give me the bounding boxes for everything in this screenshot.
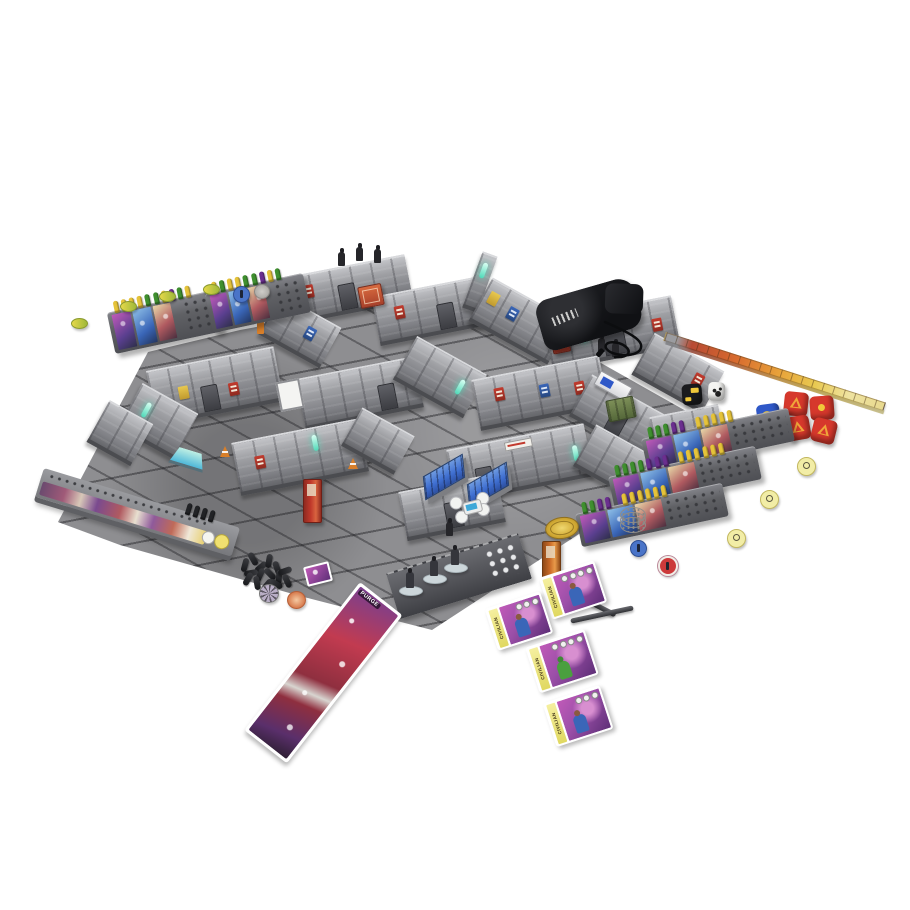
wall-door: [200, 384, 222, 413]
yellow-round-token: [760, 490, 779, 509]
peg: [258, 271, 265, 284]
wall-door: [377, 382, 399, 411]
peg: [727, 410, 734, 423]
peg: [176, 287, 183, 300]
peg: [646, 427, 653, 440]
peg: [718, 442, 725, 455]
peg: [192, 505, 200, 518]
peg: [112, 300, 119, 313]
peg: [274, 268, 281, 281]
crew-miniature: [406, 572, 414, 588]
wall-glow-light: [140, 402, 152, 418]
peg: [226, 278, 233, 291]
peg: [678, 451, 685, 464]
peg: [719, 411, 726, 424]
civilian-card-icons: [550, 634, 583, 651]
peg: [266, 270, 273, 283]
peg: [678, 420, 685, 433]
orange-disc-token: [287, 591, 306, 609]
yellow-round-token: [797, 457, 816, 476]
civilian-figure: [567, 585, 585, 606]
wall-glow-light: [454, 379, 466, 395]
peg: [588, 500, 595, 513]
wall-door: [337, 282, 359, 311]
black-peg: [247, 551, 259, 566]
peg: [645, 488, 652, 501]
peg: [662, 454, 669, 467]
blue-token: [233, 286, 250, 303]
civilian-card-icons: [574, 691, 599, 705]
blue-token: [630, 540, 647, 557]
traffic-cone-prop: [348, 458, 358, 469]
wall-door: [436, 302, 458, 331]
wall-poster-yellow: [178, 385, 190, 400]
peg: [702, 446, 709, 459]
yellow-round-token: [727, 529, 746, 548]
peg: [670, 453, 677, 466]
peg: [694, 448, 701, 461]
peg: [637, 459, 644, 472]
oval-token: [203, 284, 220, 295]
wall-checkpoint-sign: [504, 437, 533, 451]
crew-miniature: [430, 560, 438, 576]
white-die: [708, 382, 726, 402]
peg: [703, 415, 710, 428]
red-container-prop: [357, 283, 385, 309]
peg: [620, 493, 627, 506]
black-die: [681, 383, 702, 405]
oval-token: [120, 301, 137, 312]
peg: [645, 458, 652, 471]
civilian-figure: [513, 616, 531, 637]
peg: [686, 418, 693, 431]
peg: [144, 294, 151, 307]
peg: [661, 485, 668, 498]
bag-drawstring: [560, 300, 680, 370]
wall-poster-red: [493, 387, 505, 402]
red-die: [809, 395, 835, 421]
miniature-figure: [446, 522, 453, 536]
civilian-card-icons: [514, 597, 539, 611]
miniature-figure: [338, 252, 345, 266]
miniature-figure: [374, 249, 381, 263]
red-die: [809, 416, 838, 445]
peg: [629, 491, 636, 504]
wall-glow-light: [311, 435, 319, 452]
peg: [711, 413, 718, 426]
wall-poster-red: [254, 455, 266, 470]
oval-token: [71, 318, 88, 329]
civilian-card-icons: [560, 566, 593, 583]
peg: [710, 444, 717, 457]
die-triangle-symbol: [790, 396, 803, 408]
traffic-cone-prop: [220, 446, 230, 457]
crew-miniature: [451, 549, 459, 565]
tracker-yellow-pad: [212, 532, 231, 551]
peg: [580, 502, 587, 515]
civilian-figure: [571, 713, 589, 734]
peg: [613, 465, 620, 478]
product-photo-scene: PURGE CIVILIAN CIVILIAN CIVILIAN CIVILIA…: [0, 0, 910, 910]
vending-machine-prop: [303, 479, 322, 523]
peg: [670, 421, 677, 434]
peg: [136, 295, 143, 308]
entry-strip-dots: [483, 541, 525, 582]
peg: [653, 456, 660, 469]
miniature-figure: [356, 247, 363, 261]
peg: [250, 273, 257, 286]
wall-poster-blue: [505, 306, 520, 322]
peg: [654, 425, 661, 438]
dashboard-holes: [663, 488, 724, 525]
wall-poster-blue: [302, 326, 317, 342]
peg: [686, 449, 693, 462]
gray-chip-stack: [620, 507, 644, 531]
peg: [208, 510, 216, 523]
peg: [612, 495, 619, 508]
peg: [662, 423, 669, 436]
die-triangle-symbol: [817, 423, 831, 437]
peg: [621, 463, 628, 476]
peg: [200, 507, 208, 520]
oval-token: [159, 291, 176, 302]
peg: [629, 461, 636, 474]
gray-token: [254, 284, 270, 299]
peg: [184, 285, 191, 298]
civilian-figure: [555, 659, 573, 680]
peg: [596, 498, 603, 511]
die-dot-symbol: [818, 404, 825, 411]
wall-poster-yellow: [486, 291, 501, 307]
black-peg: [281, 573, 292, 588]
supply-board-holes: [272, 278, 306, 315]
red-token: [658, 556, 678, 576]
dashboard-holes: [729, 413, 790, 450]
peg: [653, 486, 660, 499]
peg: [185, 503, 193, 516]
peg: [695, 416, 702, 429]
wall-poster-blue: [538, 383, 550, 398]
wall-poster-red: [394, 305, 406, 320]
civilian-card: CIVILIAN: [542, 685, 613, 747]
peg: [604, 496, 611, 509]
gray-chip: [620, 507, 646, 523]
black-peg: [265, 554, 273, 569]
spoked-disc-token: [259, 584, 279, 603]
wall-poster-red: [228, 382, 240, 397]
wall-glow-light: [479, 262, 489, 279]
peg: [637, 490, 644, 503]
